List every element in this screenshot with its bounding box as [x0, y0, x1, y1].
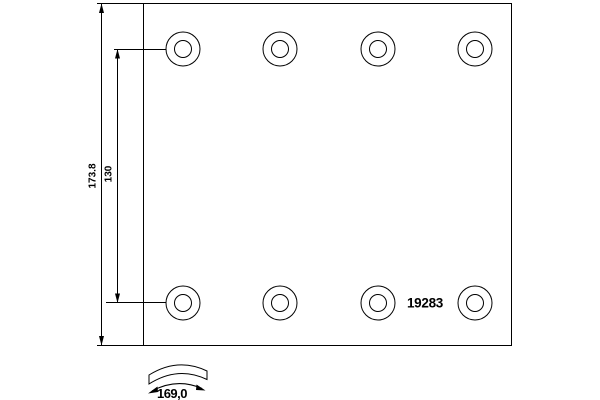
arrow-up-icon [99, 4, 104, 14]
rivet-hole [166, 286, 200, 320]
brake-lining-drawing-canvas: 173.8 130 19283 169,0 [0, 0, 600, 400]
rivet-hole [166, 32, 200, 66]
rivet-hole [458, 32, 492, 66]
technical-drawing-svg: 173.8 130 19283 169,0 [0, 0, 600, 400]
rivet-hole [361, 286, 395, 320]
overall-height-value: 173.8 [88, 163, 99, 188]
arrow-down-icon [99, 336, 104, 346]
rivet-hole [458, 286, 492, 320]
rivet-hole-row-top [166, 32, 492, 66]
rivet-hole [263, 32, 297, 66]
rivet-row-spacing-value: 130 [104, 165, 115, 182]
rivet-hole [361, 32, 395, 66]
rivet-hole [263, 286, 297, 320]
arrow-up-icon [115, 49, 120, 59]
curvature-radius-value: 169,0 [157, 386, 187, 400]
dimension-rivet-row-spacing: 130 [104, 49, 167, 303]
curved-lining-section-icon [149, 365, 207, 384]
curvature-symbol: 169,0 [148, 365, 207, 400]
arrow-down-icon [115, 294, 120, 304]
arrow-right-icon [196, 385, 206, 391]
part-number: 19283 [407, 296, 444, 311]
rivet-hole-row-bottom [166, 286, 492, 320]
